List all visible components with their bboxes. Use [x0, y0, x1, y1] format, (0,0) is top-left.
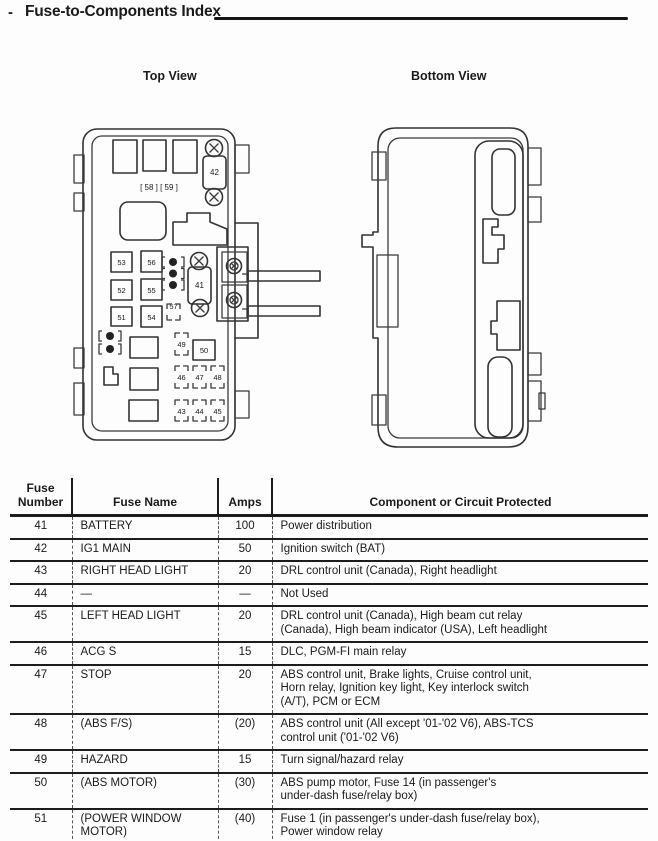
component-cell: Fuse 1 (in passenger's under-dash fuse/r… — [272, 809, 648, 841]
table-row: 51 (POWER WINDOW MOTOR) (40) Fuse 1 (in … — [10, 809, 648, 841]
fuse-number-cell: 42 — [10, 539, 72, 562]
fuse-55-label: 55 — [147, 286, 155, 295]
component-cell: DRL control unit (Canada), High beam cut… — [272, 606, 648, 642]
fuse-56-label: 56 — [147, 258, 155, 267]
fuse-name-cell: BATTERY — [72, 516, 218, 539]
fuse-48-label: 48 — [213, 373, 221, 382]
table-row: 42 IG1 MAIN 50 Ignition switch (BAT) — [10, 539, 648, 562]
table-row: 49 HAZARD 15 Turn signal/hazard relay — [10, 750, 648, 773]
table-row: 46 ACG S 15 DLC, PGM-FI main relay — [10, 642, 648, 665]
component-cell: ABS pump motor, Fuse 14 (in passenger's … — [272, 773, 648, 809]
col-header-fuse-number: Fuse Number — [10, 478, 72, 516]
fuse-number-cell: 43 — [10, 561, 72, 584]
fuse-number-cell: 46 — [10, 642, 72, 665]
amps-cell: 100 — [218, 516, 272, 539]
bottom-outer-outline — [362, 128, 528, 447]
fuse-54-label: 54 — [147, 313, 155, 322]
component-cell: Ignition switch (BAT) — [272, 539, 648, 562]
amps-cell: (30) — [218, 773, 272, 809]
connector-stepped-upper — [483, 219, 504, 263]
fuse-name-cell: ACG S — [72, 642, 218, 665]
fuse-name-cell: LEFT HEAD LIGHT — [72, 606, 218, 642]
table-row: 44 — — Not Used — [10, 584, 648, 607]
relay-housing-large — [120, 202, 166, 240]
relay-slots-blank — [129, 337, 158, 421]
screw-icon — [192, 300, 209, 317]
fuse-45-label: 45 — [213, 407, 221, 416]
fuse-57-slot: 57 — [167, 302, 180, 320]
fuse-name-cell: — — [72, 584, 218, 607]
amps-cell: 20 — [218, 561, 272, 584]
title-dash: - — [8, 4, 13, 21]
top-view-diagram: [ 58 ] [ 59 ] 42 53 56 52 55 — [58, 108, 330, 466]
fuse-49-label: 49 — [177, 340, 185, 349]
fuse-50-label: 50 — [200, 346, 208, 355]
table-row: 47 STOP 20 ABS control unit, Brake light… — [10, 665, 648, 715]
fuse-number-cell: 48 — [10, 714, 72, 750]
fuse-41-assembly: 41 — [188, 253, 211, 317]
fuse-row-43-45: 43 44 45 — [175, 400, 224, 421]
amps-cell: 15 — [218, 642, 272, 665]
amps-cell: 15 — [218, 750, 272, 773]
fuse-46-label: 46 — [177, 373, 185, 382]
fuse-49-slot: 49 — [175, 333, 188, 355]
fuse-slots-58-59 — [113, 140, 197, 173]
component-cell: Turn signal/hazard relay — [272, 750, 648, 773]
amps-cell: (40) — [218, 809, 272, 841]
fuse-name-cell: RIGHT HEAD LIGHT — [72, 561, 218, 584]
connector-stepped-lower — [491, 301, 520, 350]
component-cell: Not Used — [272, 584, 648, 607]
fuse-51-label: 51 — [117, 313, 125, 322]
fuse-number-cell: 41 — [10, 516, 72, 539]
top-view-label: Top View — [143, 69, 197, 83]
fuse-42-assembly: 42 — [203, 140, 226, 206]
fuse-44-label: 44 — [195, 407, 203, 416]
left-mount-tabs — [372, 152, 386, 425]
table-header-row: Fuse Number Fuse Name Amps Component or … — [10, 478, 648, 516]
fuse-53-label: 53 — [117, 258, 125, 267]
page-title: Fuse-to-Components Index — [25, 3, 221, 21]
table-row: 43 RIGHT HEAD LIGHT 20 DRL control unit … — [10, 561, 648, 584]
fuse-52-label: 52 — [117, 286, 125, 295]
table-row: 41 BATTERY 100 Power distribution — [10, 516, 648, 539]
table-row: 48 (ABS F/S) (20) ABS control unit (All … — [10, 714, 648, 750]
bottom-inner-outline — [388, 138, 523, 438]
table-row: 45 LEFT HEAD LIGHT 20 DRL control unit (… — [10, 606, 648, 642]
component-cell: ABS control unit (All except '01-'02 V6)… — [272, 714, 648, 750]
fuse-name-cell: HAZARD — [72, 750, 218, 773]
component-cell: ABS control unit, Brake lights, Cruise c… — [272, 665, 648, 715]
fuse-47-label: 47 — [195, 373, 203, 382]
amps-cell: 20 — [218, 606, 272, 642]
fuse-number-cell: 51 — [10, 809, 72, 841]
terminal-screw-icon — [227, 259, 242, 274]
battery-terminal-block — [217, 247, 320, 321]
bottom-view-diagram — [350, 105, 650, 465]
fuse-50-slot: 50 — [193, 340, 215, 360]
fuse-name-cell: (POWER WINDOW MOTOR) — [72, 809, 218, 841]
terminal-dots-double — [99, 331, 121, 354]
terminal-screw-icon — [227, 293, 242, 308]
fuse-58-59-label: [ 58 ] [ 59 ] — [140, 183, 178, 192]
fuse-index-table: Fuse Number Fuse Name Amps Component or … — [10, 478, 648, 841]
col-header-fuse-name: Fuse Name — [72, 478, 218, 516]
fuse-number-cell: 45 — [10, 606, 72, 642]
fuse-name-cell: STOP — [72, 665, 218, 715]
screw-icon — [206, 140, 223, 157]
amps-cell: 20 — [218, 665, 272, 715]
manual-page: - Fuse-to-Components Index Top View Bott… — [0, 0, 658, 841]
right-mount-tabs — [528, 148, 545, 421]
amps-cell: (20) — [218, 714, 272, 750]
fuse-41-label: 41 — [195, 281, 204, 290]
title-rule — [214, 17, 628, 20]
fuse-42-label: 42 — [210, 168, 219, 177]
terminal-dots-triple — [162, 257, 184, 290]
fuse-number-cell: 49 — [10, 750, 72, 773]
component-cell: DRL control unit (Canada), Right headlig… — [272, 561, 648, 584]
connector-slot-top — [492, 149, 515, 215]
keyed-connector-shape — [104, 367, 118, 385]
col-header-component: Component or Circuit Protected — [272, 478, 648, 516]
amps-cell: 50 — [218, 539, 272, 562]
relay-housing-stepped — [173, 213, 227, 245]
screw-icon — [206, 189, 223, 206]
fuse-number-cell: 47 — [10, 665, 72, 715]
fuse-name-cell: (ABS F/S) — [72, 714, 218, 750]
fusebox-inner-outline — [92, 136, 228, 431]
bottom-view-label: Bottom View — [411, 69, 486, 83]
component-cell: Power distribution — [272, 516, 648, 539]
fuse-number-cell: 44 — [10, 584, 72, 607]
fuse-row-46-48: 46 47 48 — [175, 366, 224, 388]
component-cell: DLC, PGM-FI main relay — [272, 642, 648, 665]
fuse-name-cell: (ABS MOTOR) — [72, 773, 218, 809]
fuse-number-cell: 50 — [10, 773, 72, 809]
fuse-43-label: 43 — [177, 407, 185, 416]
connector-slot-bottom — [488, 357, 512, 437]
fuse-name-cell: IG1 MAIN — [72, 539, 218, 562]
amps-cell: — — [218, 584, 272, 607]
fuse-grid-51-56: 53 56 52 55 51 54 — [111, 251, 162, 327]
table-row: 50 (ABS MOTOR) (30) ABS pump motor, Fuse… — [10, 773, 648, 809]
col-header-amps: Amps — [218, 478, 272, 516]
